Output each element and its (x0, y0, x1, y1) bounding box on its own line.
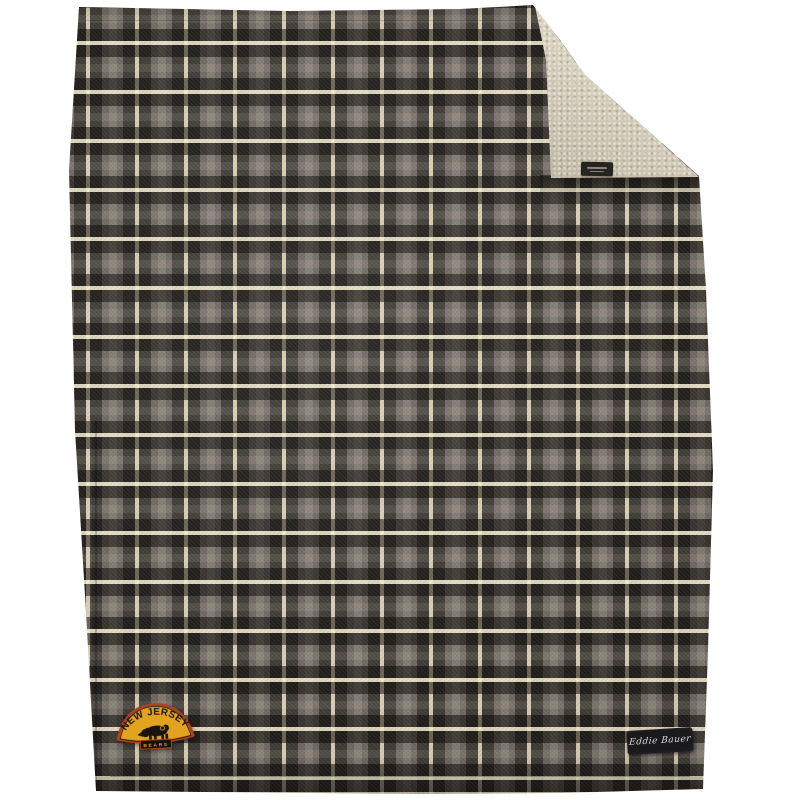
blanket: NEW JERSEY BEARS Eddie Bauer (0, 0, 800, 800)
brand-label-text: Eddie Bauer (629, 734, 692, 748)
left-hem-seam (95, 420, 97, 792)
product-photo: NEW JERSEY BEARS Eddie Bauer (0, 0, 800, 800)
fold-tag (581, 162, 613, 177)
bottom-hem-seam (110, 776, 690, 777)
sherpa-fold (528, 2, 704, 180)
fold-tag-text-line (590, 170, 604, 171)
top-hem-seam (86, 20, 526, 21)
fold-shadow (540, 175, 706, 199)
fold-tag-text-line (587, 166, 607, 168)
lighting-vignette (0, 0, 800, 800)
new-jersey-patch: NEW JERSEY BEARS (113, 697, 198, 755)
brand-label: Eddie Bauer (626, 727, 693, 755)
